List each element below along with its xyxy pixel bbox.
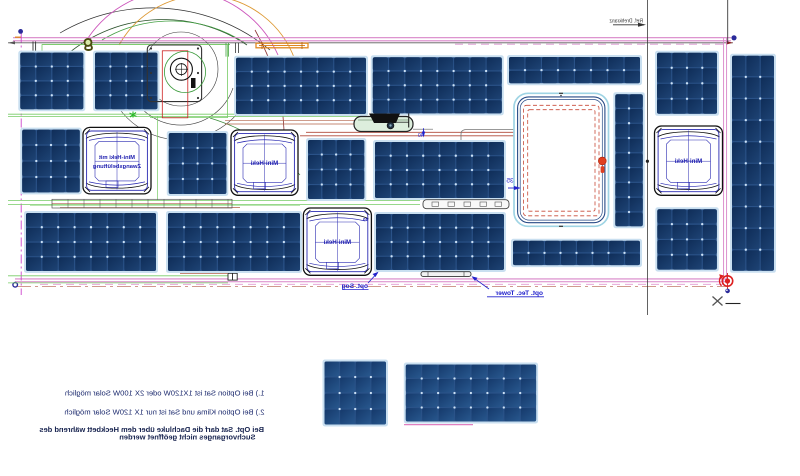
svg-text:Mini-Heki: Mini-Heki xyxy=(250,160,278,167)
svg-text:opt. Tec. Tower: opt. Tec. Tower xyxy=(495,290,543,297)
svg-text:Mini-Heki: Mini-Heki xyxy=(674,158,702,165)
svg-text:1.) Bei Option Sat ist 1X120W: 1.) Bei Option Sat ist 1X120W oder 2X 10… xyxy=(65,388,265,397)
svg-text:Mini-Heki mit: Mini-Heki mit xyxy=(99,155,135,161)
svg-text:35: 35 xyxy=(506,178,514,185)
svg-text:Mini-Heki: Mini-Heki xyxy=(323,239,351,246)
svg-text:opt. Sog: opt. Sog xyxy=(342,283,368,290)
svg-text:40: 40 xyxy=(418,133,424,139)
svg-text:Ref. Drehkranz: Ref. Drehkranz xyxy=(609,19,643,25)
svg-text:Suchvorganges nicht geöffnet w: Suchvorganges nicht geöffnet werden xyxy=(119,433,256,442)
svg-text:2.) Bei Option Klima und Sat i: 2.) Bei Option Klima und Sat ist nur 1X … xyxy=(64,407,264,416)
svg-text:40: 40 xyxy=(363,217,369,222)
svg-text:Zwangsbelüftung: Zwangsbelüftung xyxy=(93,164,141,170)
